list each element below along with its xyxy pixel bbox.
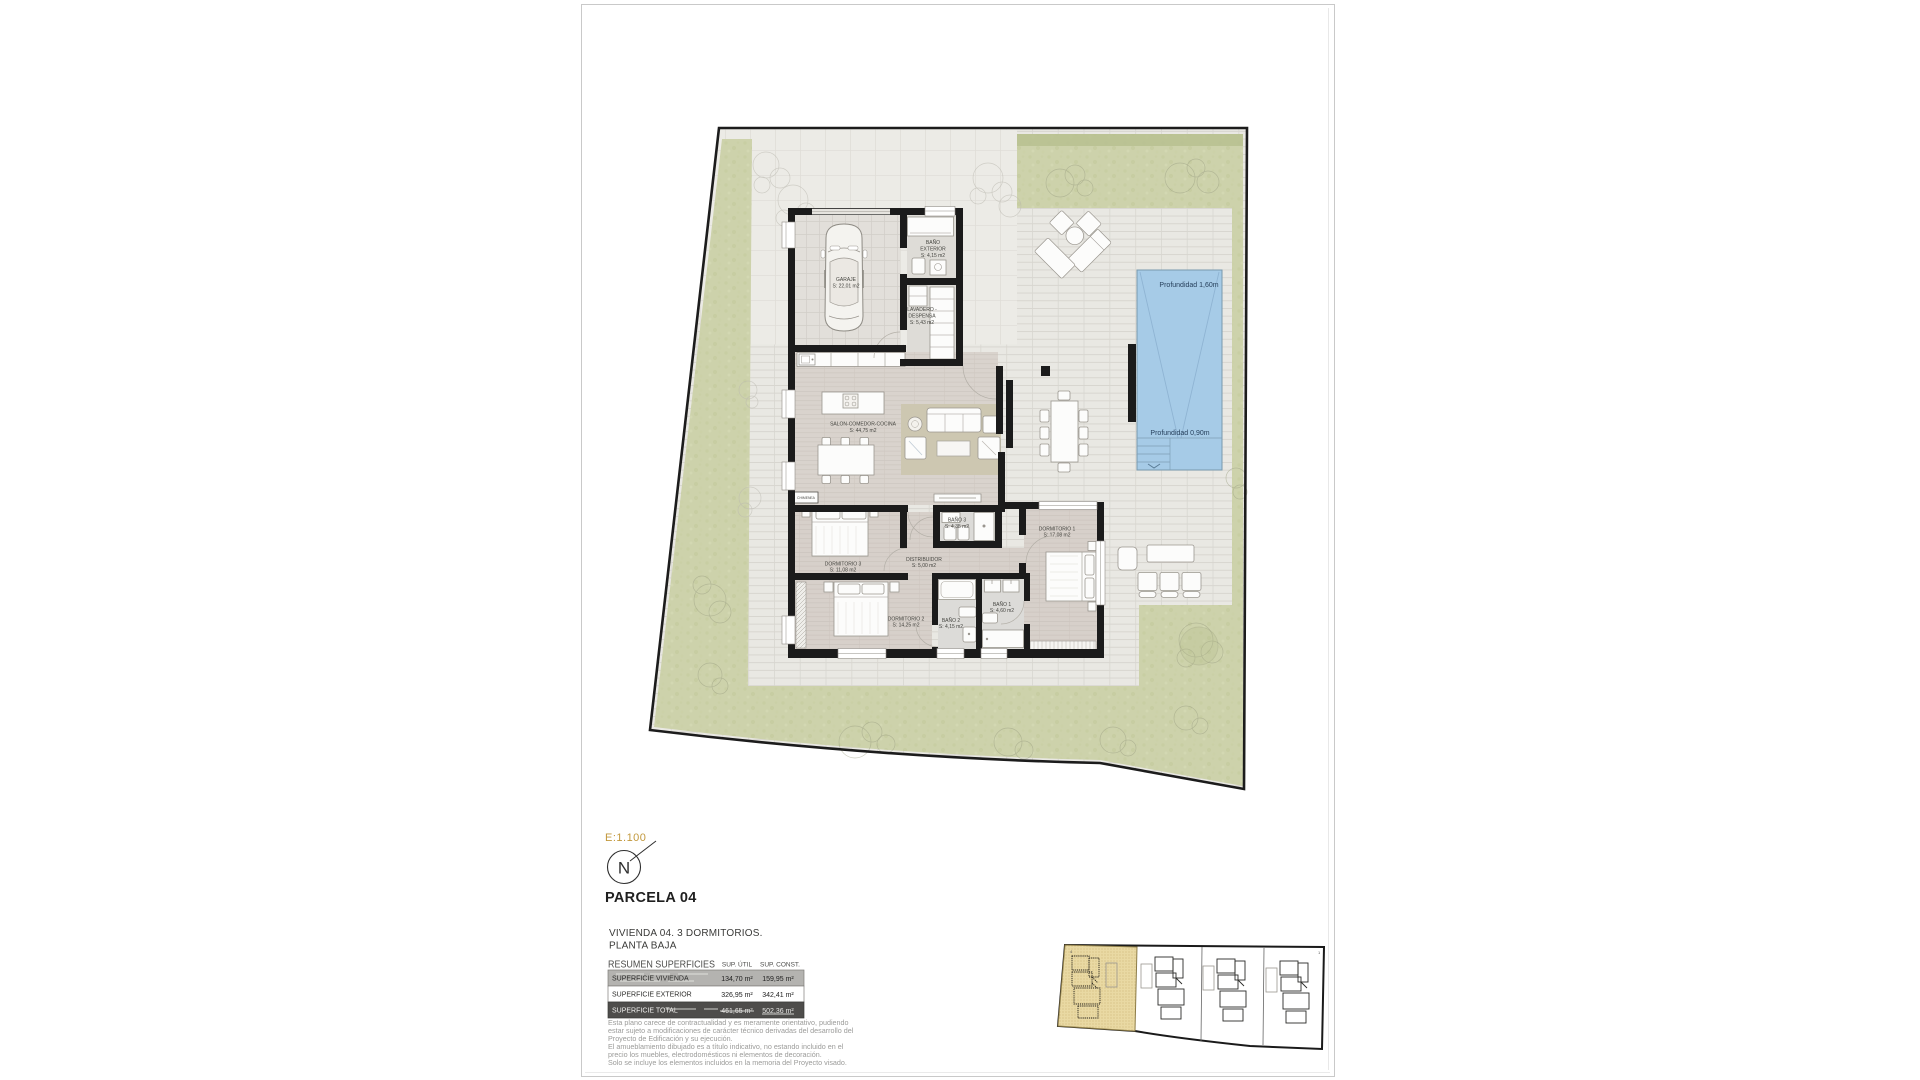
svg-text:SUP. ÚTIL: SUP. ÚTIL	[722, 960, 753, 969]
svg-text:VIVIENDA 04. 3 DORMITORIOS.: VIVIENDA 04. 3 DORMITORIOS.	[609, 928, 763, 939]
svg-text:PARCELA 04: PARCELA 04	[605, 890, 697, 906]
svg-text:S: 4,15 m2: S: 4,15 m2	[939, 624, 963, 630]
svg-text:S: 5,43 m2: S: 5,43 m2	[910, 320, 934, 326]
svg-text:S: 4,60 m2: S: 4,60 m2	[990, 608, 1014, 614]
svg-text:BAÑO 2: BAÑO 2	[942, 617, 961, 624]
svg-text:159,95 m²: 159,95 m²	[762, 976, 794, 983]
svg-text:S: 44,75 m2: S: 44,75 m2	[850, 428, 877, 434]
svg-text:SUPERFICIE EXTERIOR: SUPERFICIE EXTERIOR	[612, 992, 692, 999]
svg-text:S: 17,08 m2: S: 17,08 m2	[1044, 533, 1071, 539]
svg-text:LAVADERO -: LAVADERO -	[907, 307, 937, 313]
svg-text:326,95 m²: 326,95 m²	[721, 992, 753, 999]
svg-text:Solo se incluye los elementos: Solo se incluye los elementos incluidos …	[608, 1058, 847, 1067]
svg-text:S: 11,08 m2: S: 11,08 m2	[830, 568, 857, 574]
svg-text:342,41 m²: 342,41 m²	[762, 992, 794, 999]
svg-text:134,70 m²: 134,70 m²	[721, 976, 753, 983]
svg-text:EXTERIOR: EXTERIOR	[920, 247, 946, 253]
svg-text:Profundidad 1,60m: Profundidad 1,60m	[1159, 282, 1218, 289]
svg-text:RESUMEN SUPERFICIES: RESUMEN SUPERFICIES	[608, 960, 715, 971]
svg-text:BAÑO 3: BAÑO 3	[948, 517, 967, 524]
svg-text:SALON-COMEDOR-COCINA: SALON-COMEDOR-COCINA	[830, 422, 897, 428]
svg-text:E:1.100: E:1.100	[605, 832, 646, 844]
svg-text:SUP. CONST.: SUP. CONST.	[760, 962, 800, 969]
svg-text:GARAJE: GARAJE	[836, 277, 857, 283]
svg-text:S: 4,35 m2: S: 4,35 m2	[945, 524, 969, 530]
svg-text:SUPERFICIE VIVIENDA: SUPERFICIE VIVIENDA	[612, 976, 689, 983]
svg-text:CHIMENEA: CHIMENEA	[797, 496, 816, 500]
svg-text:N: N	[618, 859, 630, 878]
svg-text:Profundidad 0,90m: Profundidad 0,90m	[1150, 430, 1209, 437]
svg-text:S: 5,00 m2: S: 5,00 m2	[912, 563, 936, 569]
svg-text:S: 22,01 m2: S: 22,01 m2	[833, 284, 860, 290]
svg-text:S: 14,25 m2: S: 14,25 m2	[893, 623, 920, 629]
svg-text:BAÑO: BAÑO	[926, 239, 940, 246]
svg-text:DESPENSA: DESPENSA	[908, 314, 936, 320]
svg-text:S: 4,15 m2: S: 4,15 m2	[921, 253, 945, 259]
svg-text:BAÑO 1: BAÑO 1	[993, 601, 1012, 608]
svg-text:PLANTA BAJA: PLANTA BAJA	[609, 941, 677, 952]
